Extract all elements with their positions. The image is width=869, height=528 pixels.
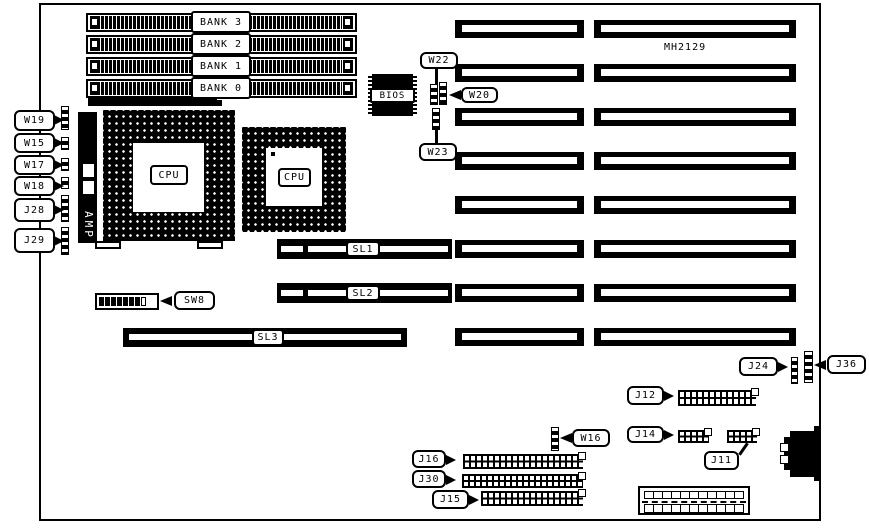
dip-segment (99, 297, 104, 306)
isa-slot (594, 284, 796, 302)
simm-clip (90, 16, 100, 29)
pin-header-j16 (463, 454, 583, 469)
isa-slot (594, 20, 796, 38)
amp-bracket-label: AMP (82, 211, 95, 240)
sl2-label: SL2 (346, 285, 380, 301)
jumper-j24 (791, 357, 798, 384)
jumper-w23 (432, 108, 440, 130)
amp-bracket-window (83, 164, 94, 177)
jumper-w16 (551, 427, 559, 451)
sl1-label: SL1 (346, 241, 380, 257)
callout-j12: J12 (627, 386, 664, 405)
amp-bracket-window (83, 181, 94, 194)
callout-j30-pointer (446, 475, 456, 485)
pin-header-j14 (678, 430, 709, 443)
socket-foot (197, 241, 223, 249)
isa-slot (594, 152, 796, 170)
keyboard-connector-notch (780, 455, 789, 464)
sl3-label: SL3 (252, 329, 284, 346)
callout-j29: J29 (14, 228, 55, 253)
pin-header-j15 (481, 491, 583, 506)
power-pin-row (644, 491, 744, 499)
jumper-j36 (804, 351, 813, 383)
callout-j14: J14 (627, 426, 664, 443)
isa-slot (455, 284, 584, 302)
isa-slot (455, 108, 584, 126)
callout-j15-pointer (469, 495, 479, 505)
callout-w23: W23 (419, 143, 457, 161)
isa-slot (455, 64, 584, 82)
callout-w16: W16 (572, 429, 610, 447)
callout-sw8-pointer (160, 296, 172, 306)
callout-w22-pointer (435, 68, 438, 85)
isa-slot (455, 152, 584, 170)
dip-segment (141, 297, 146, 306)
callout-w22: W22 (420, 52, 458, 69)
callout-w15-pointer (54, 138, 64, 148)
cpu-primary-label: CPU (150, 165, 188, 185)
bank2-label: BANK 2 (191, 33, 251, 55)
keyboard-connector (790, 431, 814, 477)
pin1-dot (271, 152, 275, 156)
callout-j16: J16 (412, 450, 446, 468)
callout-j15: J15 (432, 490, 469, 509)
bank1-label: BANK 1 (191, 55, 251, 77)
callout-j11: J11 (704, 451, 739, 470)
dip-segment (111, 297, 116, 306)
isa-slot (594, 196, 796, 214)
power-connector (638, 486, 750, 515)
simm-clip (90, 38, 100, 51)
isa-slot (594, 64, 796, 82)
isa-slot (594, 108, 796, 126)
callout-w20-pointer (449, 90, 461, 100)
cpu-secondary-label: CPU (278, 168, 311, 187)
slot-stripe (281, 246, 303, 252)
keyboard-connector-notch (780, 443, 789, 452)
callout-j14-pointer (664, 430, 674, 440)
callout-j28-pointer (54, 205, 64, 215)
callout-w20: W20 (461, 87, 498, 103)
callout-j16-pointer (446, 455, 456, 465)
pin-header-j11 (727, 430, 757, 443)
simm-clip (343, 38, 353, 51)
dip-segment (105, 297, 110, 306)
dip-segment (129, 297, 134, 306)
callout-j36-pointer (814, 360, 826, 370)
socket-foot (95, 241, 121, 249)
simm-clip (343, 16, 353, 29)
isa-slot (455, 196, 584, 214)
isa-slot (455, 240, 584, 258)
cpu-socket-secondary: CPU (242, 127, 346, 232)
callout-w15: W15 (14, 133, 55, 153)
isa-slot (594, 328, 796, 346)
keyboard-connector-nose (784, 437, 791, 470)
callout-j24-pointer (778, 362, 788, 372)
pin-header-j12 (678, 390, 756, 406)
power-divider (642, 501, 746, 503)
callout-j36: J36 (827, 355, 866, 374)
bank0-label: BANK 0 (191, 77, 251, 99)
callout-w17-pointer (54, 160, 64, 170)
part-number: MH2129 (664, 42, 706, 53)
jumper-w22 (430, 84, 438, 105)
bios-label: BIOS (370, 88, 415, 103)
dip-segment (135, 297, 140, 306)
pin-header-j30 (462, 474, 583, 488)
simm-clip (90, 82, 100, 95)
callout-j30: J30 (412, 470, 446, 488)
callout-w19-pointer (54, 115, 64, 125)
callout-w18-pointer (54, 181, 64, 191)
cpu-socket-primary: CPU (103, 110, 235, 241)
isa-slot (594, 240, 796, 258)
callout-j28: J28 (14, 198, 55, 222)
callout-sw8: SW8 (174, 291, 215, 310)
isa-slot (455, 328, 584, 346)
callout-w23-pointer (435, 129, 438, 144)
callout-w16-pointer (560, 433, 572, 443)
callout-w18: W18 (14, 176, 55, 196)
dip-segment (123, 297, 128, 306)
bank3-label: BANK 3 (191, 11, 251, 33)
callout-w17: W17 (14, 155, 55, 175)
slot-stripe (281, 290, 303, 296)
simm-clip (343, 60, 353, 73)
callout-w19: W19 (14, 110, 55, 131)
callout-j29-pointer (54, 236, 64, 246)
motherboard-diagram: BANK 3 BANK 2 BANK 1 BANK 0 CPU AMP CPU … (0, 0, 869, 528)
isa-slot (455, 20, 584, 38)
simm-clip (90, 60, 100, 73)
callout-j24: J24 (739, 357, 778, 376)
jumper-w20 (439, 82, 447, 105)
dip-switch-sw8 (95, 293, 159, 310)
keyboard-connector-flange (814, 426, 821, 481)
cpu-retention-bar-notch (216, 100, 222, 106)
amp-bracket: AMP (78, 112, 97, 243)
callout-j12-pointer (664, 391, 674, 401)
dip-segment (117, 297, 122, 306)
simm-clip (343, 82, 353, 95)
power-pin-row (644, 504, 744, 513)
